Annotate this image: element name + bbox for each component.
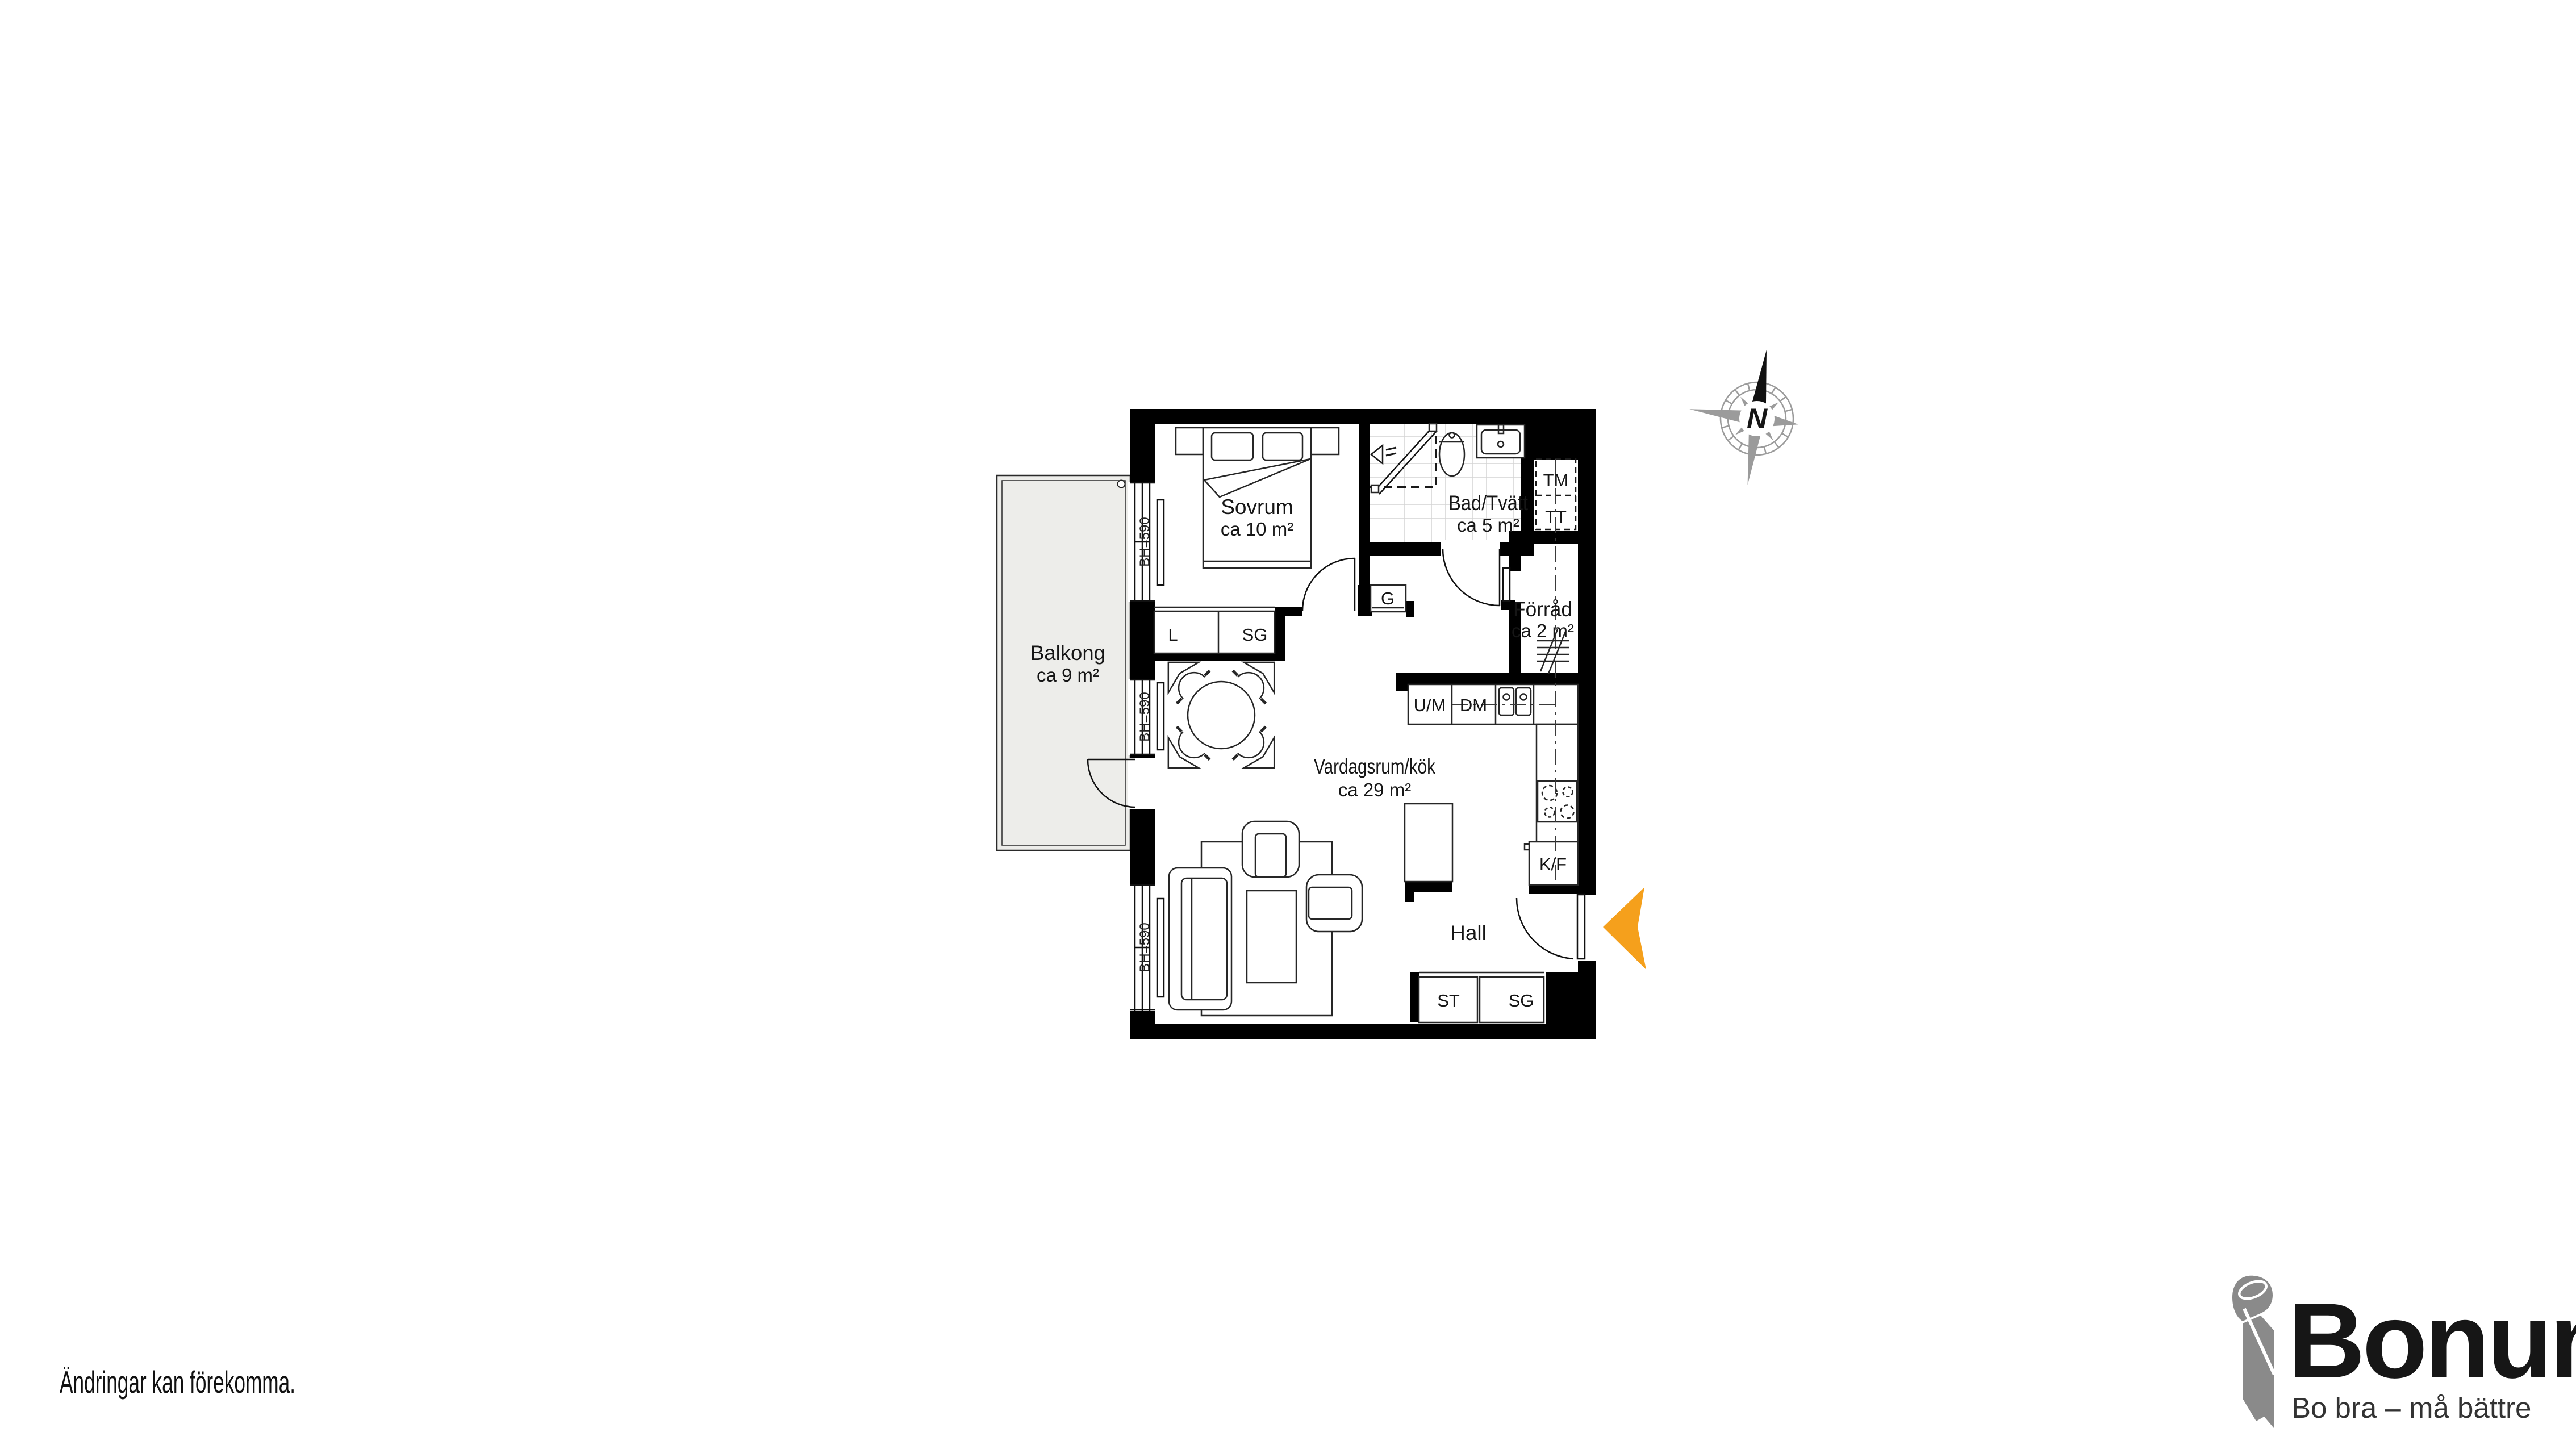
window-height-label: BH=590: [1137, 517, 1153, 566]
window-height-label: BH=590: [1137, 692, 1153, 741]
coffee-table-icon: [1247, 891, 1296, 983]
floorplan-page: N Sovrum ca 10 m² Bad/Tvätt ca 5 m² Balk…: [0, 0, 2576, 1449]
room-label-vardagsrum: Vardagsrum/kök: [1314, 755, 1435, 778]
room-label-balkong: Balkong: [1030, 641, 1105, 665]
compass-rose-icon: N: [1680, 340, 1809, 491]
nightstand: [1176, 428, 1203, 454]
balcony-drain-icon: [1118, 481, 1125, 488]
dryer-label: TT: [1545, 507, 1567, 527]
area-label-sovrum: ca 10 m²: [1221, 519, 1293, 540]
living-furniture: [1169, 821, 1362, 1016]
sliding-wardrobe-hall-label: SG: [1509, 991, 1534, 1010]
room-label-sovrum: Sovrum: [1221, 495, 1293, 519]
entry-arrow-icon: [1603, 887, 1646, 970]
area-label-vardagsrum: ca 29 m²: [1338, 779, 1411, 800]
bonum-logo-icon: [2232, 1276, 2274, 1428]
oven-micro-label: U/M: [1414, 695, 1446, 715]
bonum-logo: Bonum Bo bra – må bättre: [2232, 1276, 2576, 1428]
entrance-door: [1577, 895, 1585, 959]
toilet-icon: [1439, 433, 1464, 477]
nightstand: [1311, 428, 1339, 454]
area-label-forrad: ca 2 m²: [1512, 620, 1574, 641]
washbasin-icon: [1477, 425, 1525, 458]
compass-north-label: N: [1747, 403, 1768, 435]
dining-table-icon: [1188, 682, 1255, 749]
room-label-forrad: Förråd: [1513, 598, 1572, 621]
sliding-wardrobe-label: SG: [1242, 625, 1268, 645]
room-label-hall: Hall: [1450, 921, 1487, 945]
bathroom-door: [1443, 549, 1500, 606]
fridge-freezer-label: K/F: [1539, 854, 1567, 874]
floorplan-drawing: N Sovrum ca 10 m² Bad/Tvätt ca 5 m² Balk…: [0, 0, 2576, 1449]
dining-set: [1152, 646, 1291, 784]
washer-label: TM: [1543, 470, 1569, 490]
window-height-label: BH=590: [1137, 922, 1153, 972]
disclaimer-text: Ändringar kan förekomma.: [60, 1364, 295, 1400]
wardrobe-g-label: G: [1381, 588, 1395, 608]
dishwasher-label: DM: [1460, 695, 1487, 715]
sofa-icon: [1169, 868, 1231, 1010]
stove-icon: [1538, 781, 1577, 822]
linen-closet-label: L: [1168, 625, 1178, 645]
room-label-bad: Bad/Tvätt: [1448, 491, 1529, 515]
bonum-tagline-label: Bo bra – må bättre: [2291, 1392, 2531, 1424]
storage-door: [1503, 568, 1510, 601]
armchair-icon: [1242, 821, 1299, 877]
cleaning-closet-label: ST: [1437, 991, 1460, 1010]
area-label-bad: ca 5 m²: [1457, 515, 1519, 536]
armchair-icon: [1306, 875, 1362, 932]
bonum-brand-label: Bonum: [2288, 1281, 2576, 1400]
area-label-balkong: ca 9 m²: [1037, 665, 1099, 686]
kitchen-island: [1405, 804, 1452, 882]
